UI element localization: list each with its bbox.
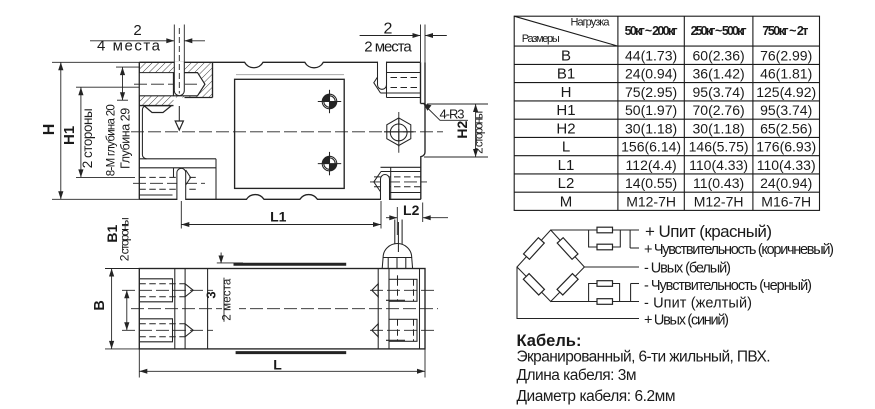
svg-text:L: L xyxy=(273,356,282,372)
svg-text:Экранированный, 6-ти жильный,: Экранированный, 6-ти жильный, ПВХ. xyxy=(517,349,771,366)
svg-text:Длина кабеля: 3м: Длина кабеля: 3м xyxy=(517,367,637,384)
svg-text:B: B xyxy=(92,300,108,310)
svg-text:65(2.56): 65(2.56) xyxy=(760,120,812,136)
svg-text:112(4.4): 112(4.4) xyxy=(626,157,677,173)
svg-text:95(3.74): 95(3.74) xyxy=(693,84,745,100)
svg-text:H2: H2 xyxy=(556,120,575,137)
svg-text:110(4.33): 110(4.33) xyxy=(757,157,816,173)
svg-text:- Uпит (желтый): - Uпит (желтый) xyxy=(644,295,752,311)
svg-text:- Чувствительность (черный): - Чувствительность (черный) xyxy=(644,278,812,294)
svg-text:H: H xyxy=(41,124,58,136)
svg-text:46(1.81): 46(1.81) xyxy=(760,66,812,82)
svg-text:+ Uпит (красный): + Uпит (красный) xyxy=(645,222,772,241)
svg-text:+ Uвых (синий): + Uвых (синий) xyxy=(644,312,729,328)
svg-text:50кг ~ 200кг: 50кг ~ 200кг xyxy=(625,24,678,38)
svg-text:2: 2 xyxy=(384,20,393,37)
svg-text:M: M xyxy=(560,193,573,210)
svg-text:125(4.92): 125(4.92) xyxy=(756,84,816,100)
svg-text:250кг ~ 500кг: 250кг ~ 500кг xyxy=(691,24,747,38)
svg-text:L1: L1 xyxy=(270,209,287,225)
svg-text:14(0.55): 14(0.55) xyxy=(625,175,677,191)
svg-text:30(1.18): 30(1.18) xyxy=(693,120,745,136)
svg-text:750кг ~ 2т: 750кг ~ 2т xyxy=(762,24,808,38)
svg-text:Кабель:: Кабель: xyxy=(517,332,582,350)
svg-text:50(1.97): 50(1.97) xyxy=(625,102,677,118)
svg-text:B: B xyxy=(561,47,571,64)
svg-text:H2: H2 xyxy=(454,121,470,139)
svg-text:176(6.93): 176(6.93) xyxy=(756,139,816,155)
svg-text:Диаметр кабеля: 6.2мм: Диаметр кабеля: 6.2мм xyxy=(517,388,676,405)
svg-text:H1: H1 xyxy=(61,126,78,145)
svg-text:24(0.94): 24(0.94) xyxy=(760,175,812,191)
svg-text:2 стороны: 2 стороны xyxy=(80,108,95,168)
svg-text:95(3.74): 95(3.74) xyxy=(760,102,812,118)
svg-text:60(2.36): 60(2.36) xyxy=(693,47,745,63)
svg-text:2: 2 xyxy=(133,22,141,39)
svg-text:110(4.33): 110(4.33) xyxy=(689,157,748,173)
svg-text:H: H xyxy=(561,84,572,101)
svg-text:75(2.95): 75(2.95) xyxy=(625,84,677,100)
svg-text:4 места: 4 места xyxy=(97,38,161,55)
svg-text:36(1.42): 36(1.42) xyxy=(693,66,745,82)
svg-text:+ Чувствительность (коричневый: + Чувствительность (коричневый) xyxy=(644,242,834,258)
svg-text:- Uвых (белый): - Uвых (белый) xyxy=(644,260,731,276)
svg-text:8-М глубина 20: 8-М глубина 20 xyxy=(105,104,117,176)
svg-text:156(6.14): 156(6.14) xyxy=(621,139,681,155)
svg-text:L1: L1 xyxy=(558,157,575,174)
svg-text:B1: B1 xyxy=(557,66,575,83)
svg-text:2 стороны: 2 стороны xyxy=(474,111,486,154)
svg-text:76(2.99): 76(2.99) xyxy=(760,47,812,63)
svg-text:2 места: 2 места xyxy=(364,38,412,55)
svg-text:L2: L2 xyxy=(403,202,420,218)
svg-text:146(5.75): 146(5.75) xyxy=(689,139,749,155)
svg-text:L2: L2 xyxy=(558,175,575,192)
svg-text:30(1.18): 30(1.18) xyxy=(625,120,677,136)
svg-text:Глубина 29: Глубина 29 xyxy=(119,108,133,169)
svg-text:H1: H1 xyxy=(556,102,575,119)
svg-text:3: 3 xyxy=(204,291,219,298)
svg-text:M16-7H: M16-7H xyxy=(761,193,811,209)
svg-text:2 стороны: 2 стороны xyxy=(117,217,131,261)
svg-text:4-R3: 4-R3 xyxy=(440,106,465,121)
svg-text:Нагрузка: Нагрузка xyxy=(571,17,611,29)
svg-text:M12-7H: M12-7H xyxy=(626,193,676,209)
svg-text:Размеры: Размеры xyxy=(522,33,560,45)
svg-text:24(0.94): 24(0.94) xyxy=(625,66,677,82)
svg-text:M12-7H: M12-7H xyxy=(694,193,744,209)
svg-text:L: L xyxy=(562,139,570,156)
svg-text:70(2.76): 70(2.76) xyxy=(693,102,745,118)
svg-text:2 места: 2 места xyxy=(222,278,234,321)
svg-text:11(0.43): 11(0.43) xyxy=(693,175,744,191)
svg-text:44(1.73): 44(1.73) xyxy=(625,47,677,63)
